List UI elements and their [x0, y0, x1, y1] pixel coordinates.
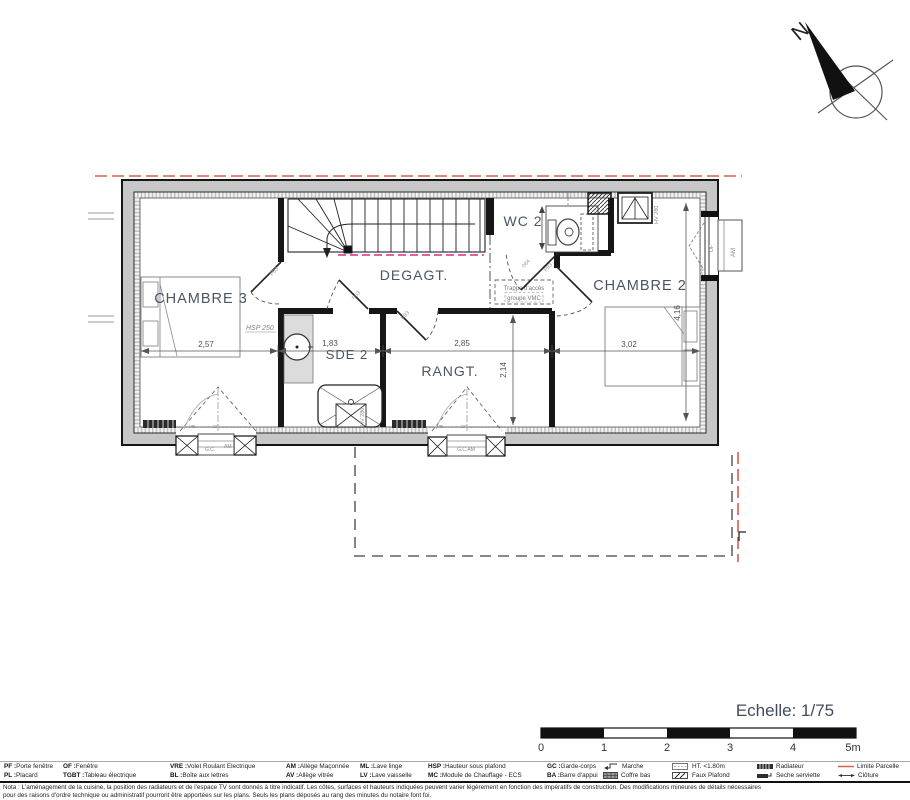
legend-item: AVAllège vitrée — [286, 771, 360, 780]
window-east-vre-label: VRE — [699, 267, 704, 276]
scale-tick-3: 3 — [727, 742, 733, 754]
scale-tick-2: 2 — [664, 742, 670, 754]
floor-plan-page: N — [0, 0, 910, 800]
dim-rangt-depth: 2,14 — [499, 362, 508, 378]
legend-item: MCModule de Chauffage - ECS — [428, 771, 547, 780]
legend-item: GCGarde-corps — [547, 762, 603, 771]
legend-item: Coffre bas — [603, 771, 672, 780]
left-wall-ticks — [88, 213, 114, 322]
window2-gcam-label: G.C.AM — [457, 447, 475, 453]
window2-vr-label: VR — [437, 424, 444, 429]
room-label-chambre2: CHAMBRE 2 — [593, 278, 687, 294]
cloture-icon — [838, 771, 855, 780]
legend-item: BLBoîte aux lettres — [170, 771, 286, 780]
room-label-sde2: SDE 2 — [326, 347, 369, 362]
limite-parcelle-icon — [838, 762, 854, 771]
nota-line-1: Nota : L'aménagement de la cuisine, la p… — [3, 784, 909, 792]
radiator-chambre3 — [143, 420, 176, 428]
staircase — [288, 199, 485, 258]
floor-plan-drawing: N — [0, 0, 910, 760]
legend-item: HSPHauteur sous plafond — [428, 762, 547, 771]
radiator-rangt — [392, 420, 426, 428]
bed-chambre3 — [141, 277, 240, 357]
radiateur-icon — [757, 762, 773, 771]
ht-icon — [672, 762, 689, 771]
dim-chambre2-depth: 4,16 — [673, 305, 682, 321]
legend-item: TGBTTableau électrique — [63, 771, 170, 780]
legend-item: Marche — [603, 762, 672, 771]
window1-gc-label: G.C. — [205, 447, 215, 453]
legend-item: AMAllège Maçonnée — [286, 762, 360, 771]
marche-icon — [603, 762, 619, 771]
window1-cf-label: CF — [213, 424, 219, 429]
legend: PFPorte fenêtre OFFenêtre VREVolet Roula… — [0, 761, 910, 783]
pillow — [143, 321, 158, 346]
legend-item: BABarre d'appui — [547, 771, 603, 780]
lower-floor-outline — [355, 447, 732, 556]
shower-height-label: HV 280 — [360, 408, 366, 426]
room-label-degagt: DEGAGT. — [380, 267, 448, 283]
window-east-am-label: AM — [731, 248, 737, 257]
legend-row-1: PFPorte fenêtre OFFenêtre VREVolet Roula… — [0, 762, 910, 771]
legend-item: VREVolet Roulant Electrique — [170, 762, 286, 771]
north-compass: N — [787, 18, 893, 120]
dim-rangt-width: 2,85 — [454, 339, 470, 348]
coffre-bas-icon — [603, 771, 618, 780]
hsp-label: HSP 250 — [246, 325, 274, 332]
dim-sde2-width: 1,83 — [322, 339, 338, 348]
scale-tick-4: 4 — [790, 742, 796, 754]
window1-vr-label: VR — [189, 424, 196, 429]
legend-item: LVLave vaisselle — [360, 771, 428, 780]
north-label: N — [787, 18, 813, 45]
dim-chambre3-width: 2,57 — [198, 340, 214, 349]
legend-item: Seche serviette — [757, 771, 838, 780]
room-label-wc2: WC 2 — [504, 213, 543, 229]
boundary-marker — [739, 532, 746, 541]
room-label-rangt: RANGT. — [421, 363, 478, 379]
scale-bar: Echelle: 1/75 0 1 2 3 4 5m — [538, 701, 861, 754]
dim-chambre2-width: 3,02 — [621, 340, 637, 349]
scale-tick-5: 5m — [845, 742, 860, 754]
legend-item: OFFenêtre — [63, 762, 170, 771]
scale-tick-0: 0 — [538, 742, 544, 754]
legend-item: PLPlacard — [4, 771, 63, 780]
nota-line-2: pour des raisons d'ordre technique ou ad… — [3, 792, 909, 800]
seche-serviette-icon — [757, 771, 773, 780]
north-arrow-icon — [805, 22, 855, 100]
legend-item: Limite Parcelle — [838, 762, 910, 771]
legend-item: Clôture — [838, 771, 910, 780]
legend-item: Radiateur — [757, 762, 838, 771]
room-label-chambre3: CHAMBRE 3 — [154, 291, 248, 307]
trappe-label-2: groupe VMC — [507, 296, 541, 302]
legend-item: Faux Plafond — [672, 771, 757, 780]
window2-cf-label: CF — [461, 424, 467, 429]
faux-plafond-icon — [672, 771, 689, 780]
duct-shaft — [588, 193, 611, 214]
toilet-tank — [548, 220, 556, 245]
legend-item: HT. <1.80m — [672, 762, 757, 771]
window1-am-label: AM — [224, 444, 232, 450]
window-east-of-label: OF — [709, 245, 715, 252]
legend-divider — [0, 781, 910, 783]
newel-post — [344, 246, 352, 253]
nota-block: Nota : L'aménagement de la cuisine, la p… — [0, 784, 909, 800]
legend-item: PFPorte fenêtre — [4, 762, 63, 771]
legend-row-2: PLPlacard TGBTTableau électrique BLBoîte… — [0, 771, 910, 780]
velux-height-label: HV 280 — [654, 206, 660, 224]
scale-label: Echelle: 1/75 — [736, 701, 834, 720]
velux-window — [618, 193, 652, 223]
legend-item: MLLave linge — [360, 762, 428, 771]
scale-tick-1: 1 — [601, 742, 607, 754]
